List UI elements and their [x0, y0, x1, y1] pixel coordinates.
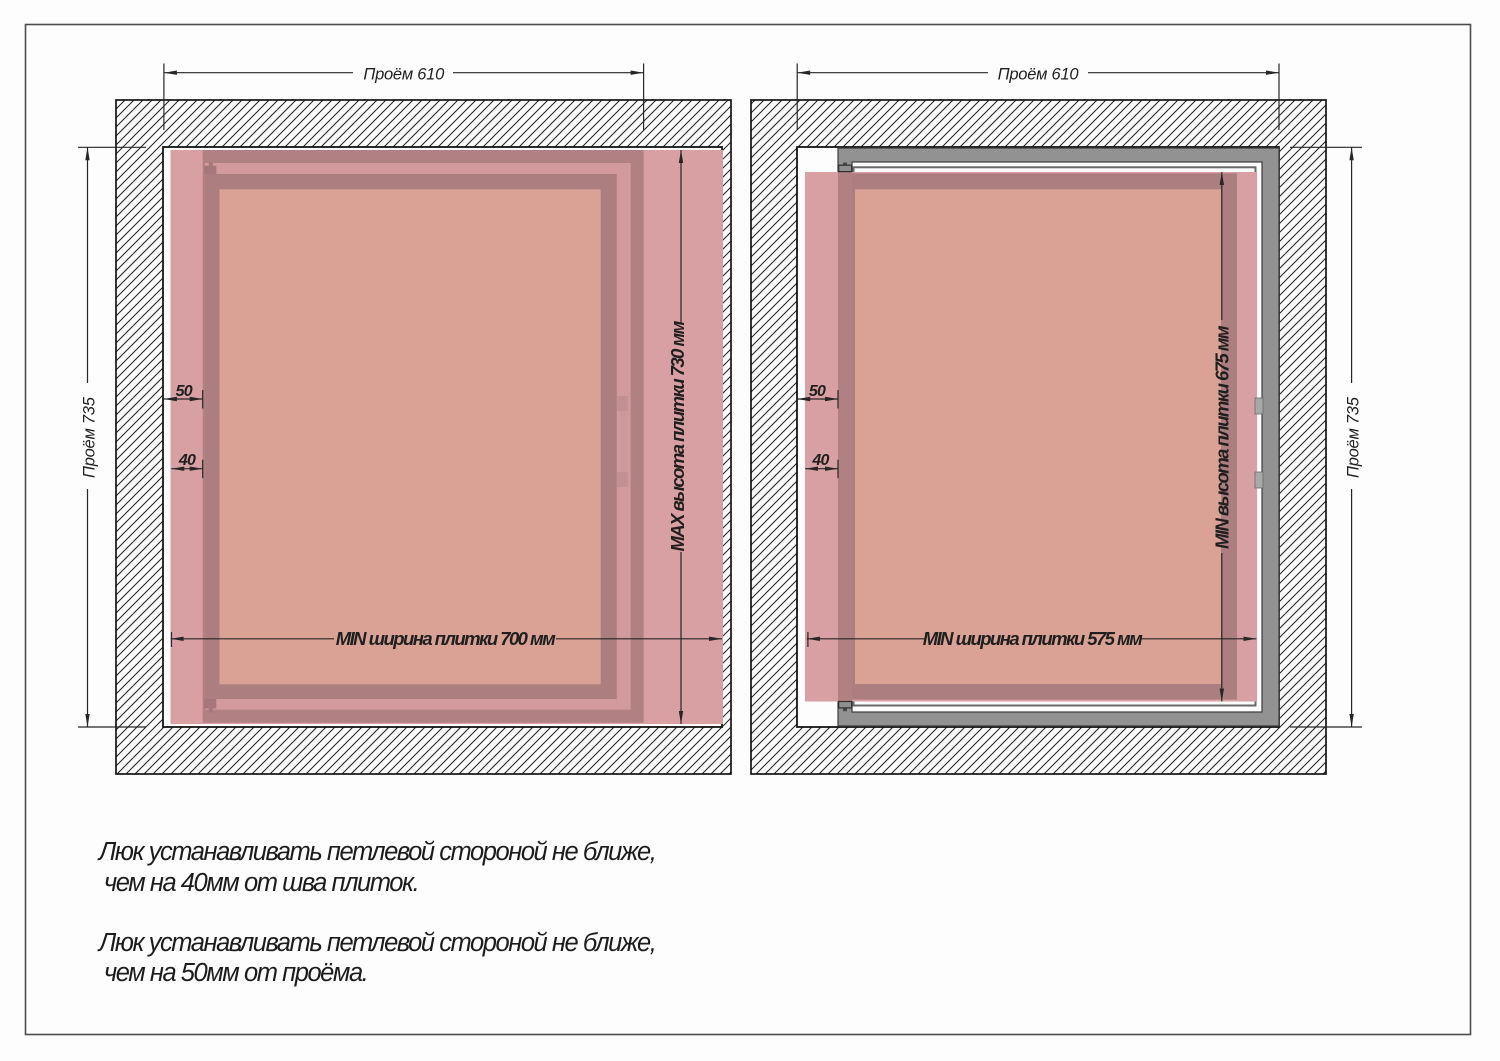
svg-text:Проём 735: Проём 735	[1345, 396, 1363, 478]
svg-text:Проём 610: Проём 610	[363, 66, 445, 84]
svg-text:Проём 735: Проём 735	[81, 396, 99, 478]
svg-text:50: 50	[176, 383, 193, 400]
svg-text:Люк устанавливать петлевой сто: Люк устанавливать петлевой стороной не б…	[97, 929, 656, 957]
svg-text:MAX высота плитки 730 мм: MAX высота плитки 730 мм	[667, 320, 688, 551]
svg-text:чем на 40мм от шва плиток.: чем на 40мм от шва плиток.	[104, 869, 418, 897]
svg-text:Люк устанавливать петлевой сто: Люк устанавливать петлевой стороной не б…	[97, 838, 656, 866]
svg-text:Проём 610: Проём 610	[998, 66, 1080, 84]
svg-text:MIN ширина плитки 700 мм: MIN ширина плитки 700 мм	[336, 628, 556, 649]
svg-text:MIN ширина плитки 575 мм: MIN ширина плитки 575 мм	[923, 628, 1143, 649]
svg-text:чем на 50мм от проёма.: чем на 50мм от проёма.	[104, 959, 367, 987]
svg-text:40: 40	[178, 452, 196, 469]
svg-text:50: 50	[809, 383, 826, 400]
svg-text:40: 40	[811, 452, 829, 469]
svg-text:MIN высота плитки 675 мм: MIN высота плитки 675 мм	[1211, 325, 1232, 549]
